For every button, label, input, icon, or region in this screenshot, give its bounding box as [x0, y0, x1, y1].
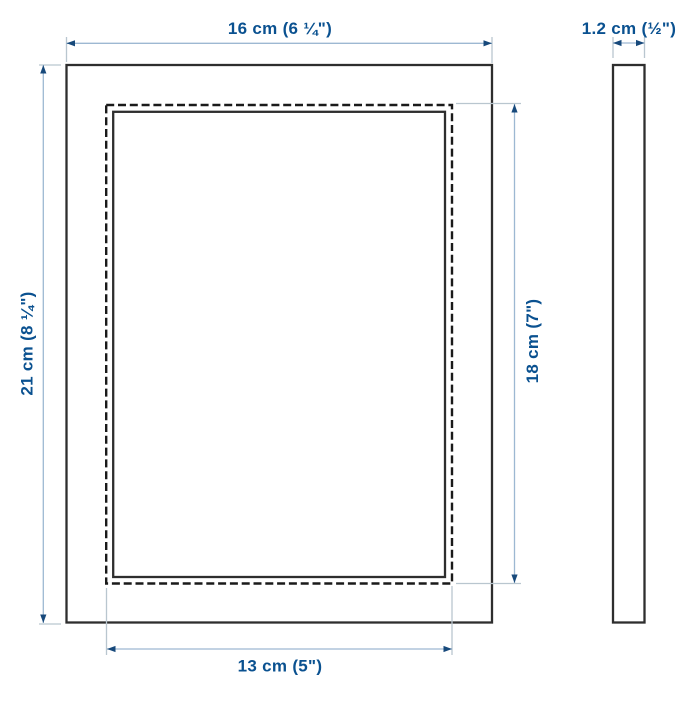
svg-text:1.2 cm (½"): 1.2 cm (½")	[582, 19, 677, 38]
svg-text:18 cm (7"): 18 cm (7")	[523, 299, 542, 384]
svg-text:16 cm (6 ¼"): 16 cm (6 ¼")	[228, 19, 332, 38]
svg-text:21 cm (8 ¼"): 21 cm (8 ¼")	[18, 291, 37, 395]
svg-text:13 cm (5"): 13 cm (5")	[238, 657, 323, 676]
